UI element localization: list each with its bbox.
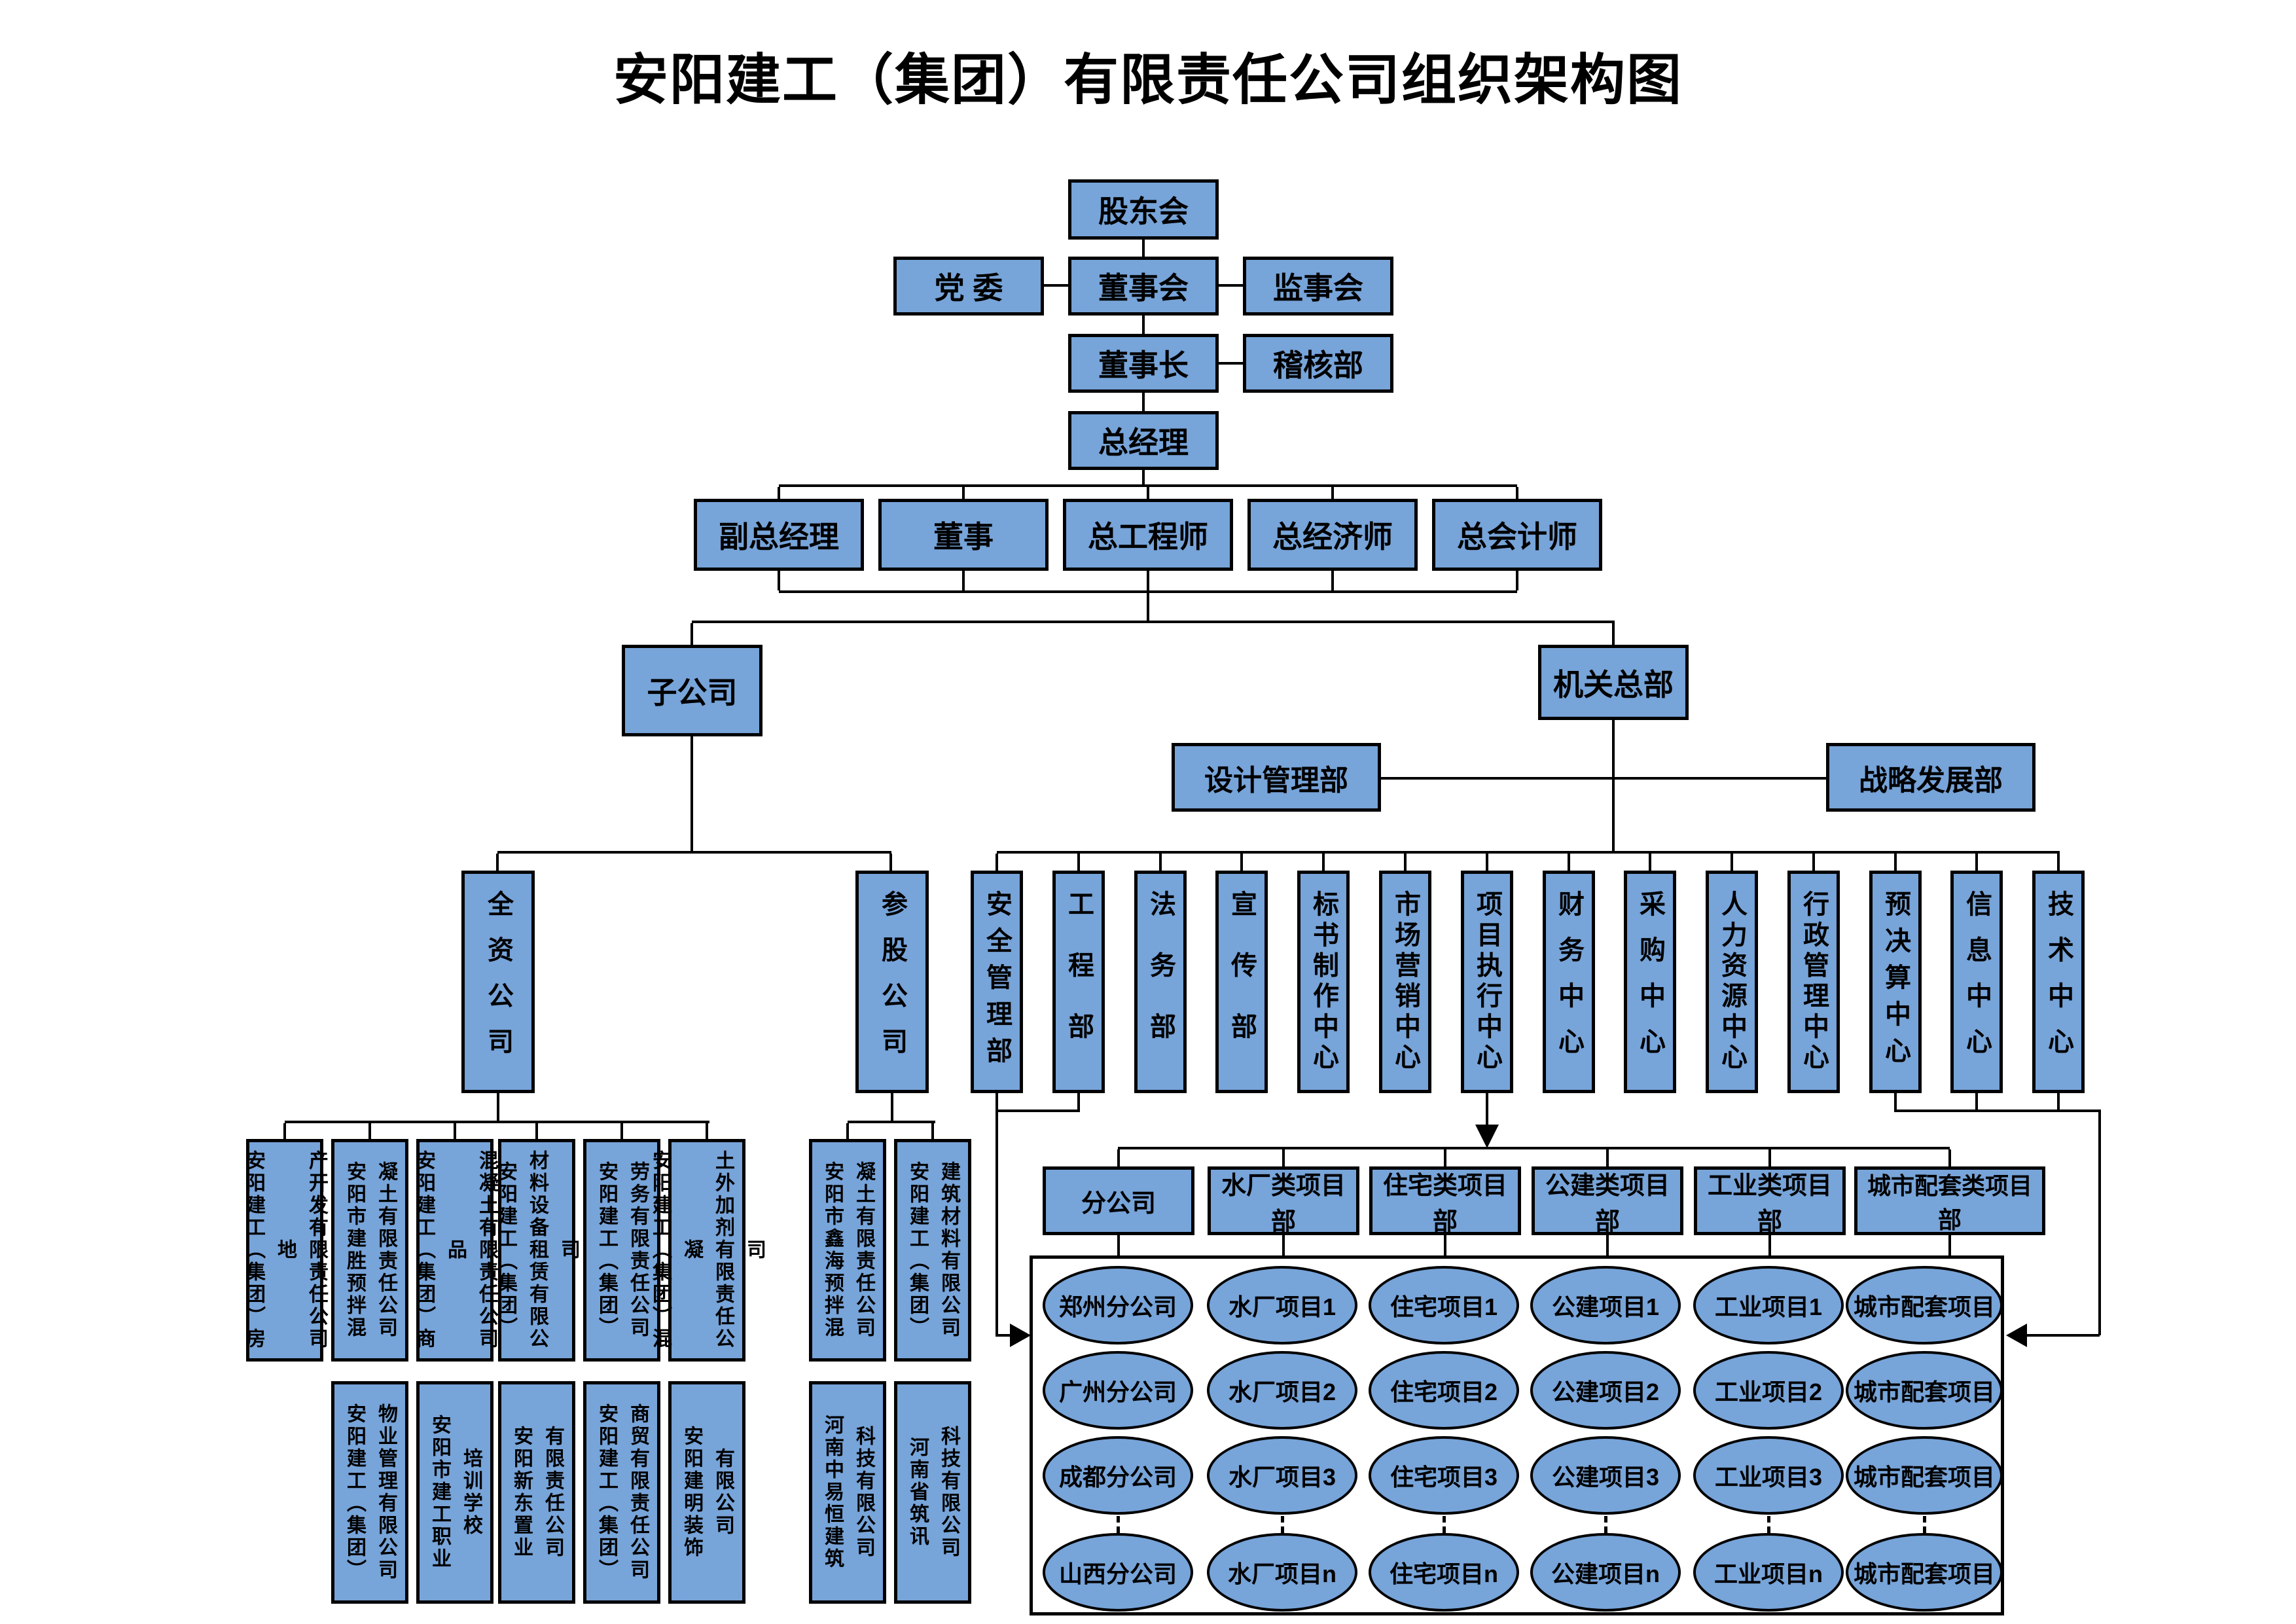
connector-line bbox=[1219, 284, 1243, 287]
dept-bid-production: 标书制作中心 bbox=[1297, 871, 1350, 1093]
ellipse-urban-3: 城市配套项目 bbox=[1846, 1436, 2003, 1515]
ellipse-urban-n: 城市配套项目 bbox=[1846, 1533, 2003, 1612]
ellipse-industrial-1: 工业项目1 bbox=[1693, 1266, 1844, 1344]
company-box: 安阳市鑫海预拌混 凝土有限责任公司 bbox=[809, 1139, 886, 1362]
dept-technology: 技术中心 bbox=[2032, 871, 2085, 1093]
connector-line bbox=[962, 571, 965, 590]
ellipse-industrial-3: 工业项目3 bbox=[1693, 1436, 1844, 1515]
ellipse-public-2: 公建项目2 bbox=[1530, 1351, 1681, 1430]
arrow-left-icon bbox=[2006, 1324, 2027, 1347]
node-supervisory: 监事会 bbox=[1243, 257, 1393, 316]
connector-line bbox=[1812, 854, 1815, 871]
connector-line bbox=[778, 571, 780, 590]
connector-line bbox=[1044, 284, 1068, 287]
ellipse-residential-1: 住宅项目1 bbox=[1369, 1266, 1519, 1344]
ellipsis-dashes bbox=[1443, 1516, 1446, 1533]
connector-line bbox=[996, 1093, 998, 1110]
header-industrial-projects: 工业类项目部 bbox=[1694, 1166, 1846, 1235]
ellipse-water-3: 水厂项目3 bbox=[1207, 1436, 1357, 1515]
connector-line bbox=[1894, 1093, 1897, 1110]
company-box: 安阳建工（集团） 物业管理有限公司 bbox=[331, 1381, 408, 1604]
connector-line bbox=[778, 487, 780, 499]
node-invested: 参股公司 bbox=[855, 871, 929, 1093]
ellipsis-dashes bbox=[1604, 1516, 1607, 1533]
node-general-manager: 总经理 bbox=[1068, 411, 1219, 470]
connector-line bbox=[1649, 854, 1651, 871]
header-public-projects: 公建类项目部 bbox=[1532, 1166, 1683, 1235]
connector-line bbox=[889, 854, 892, 871]
connector-line bbox=[1142, 316, 1145, 334]
connector-line bbox=[997, 851, 2060, 854]
connector-line bbox=[1142, 393, 1145, 411]
dept-legal: 法务部 bbox=[1134, 871, 1187, 1093]
company-box: 安阳建工（集团） 商贸有限责任公司 bbox=[583, 1381, 660, 1604]
connector-line bbox=[1331, 571, 1334, 590]
ellipse-urban-2: 城市配套项目 bbox=[1846, 1351, 2003, 1430]
company-box: 安阳市建工职业 培训学校 bbox=[416, 1381, 493, 1604]
connector-line bbox=[2098, 1112, 2101, 1335]
node-shareholders: 股东会 bbox=[1068, 179, 1219, 240]
connector-line bbox=[848, 1121, 935, 1123]
connector-line bbox=[1516, 571, 1518, 590]
ellipse-public-1: 公建项目1 bbox=[1530, 1266, 1681, 1344]
connector-line bbox=[1142, 240, 1145, 257]
connector-line bbox=[1381, 777, 1613, 780]
connector-line bbox=[846, 1123, 849, 1139]
connector-line bbox=[2027, 1334, 2100, 1337]
connector-line bbox=[368, 1123, 371, 1139]
connector-line bbox=[691, 736, 693, 851]
org-chart-canvas: 安阳建工（集团）有限责任公司组织架构图 股东会 党 委 董事会 监事会 董事长 … bbox=[0, 0, 2296, 1624]
ellipse-water-2: 水厂项目2 bbox=[1207, 1351, 1357, 1430]
connector-line bbox=[1948, 1149, 1951, 1166]
connector-line bbox=[1282, 1149, 1285, 1166]
node-director: 董事 bbox=[878, 499, 1049, 571]
connector-line bbox=[2057, 854, 2060, 871]
ellipsis-dashes bbox=[1117, 1516, 1120, 1533]
connector-line bbox=[620, 1123, 623, 1139]
connector-line bbox=[1219, 362, 1243, 365]
connector-line bbox=[1147, 571, 1149, 590]
connector-line bbox=[1516, 487, 1518, 499]
header-branch-company: 分公司 bbox=[1043, 1166, 1194, 1235]
connector-line bbox=[1486, 854, 1488, 871]
connector-line bbox=[1240, 854, 1243, 871]
connector-line bbox=[706, 1123, 708, 1139]
dept-finance: 财务中心 bbox=[1543, 871, 1595, 1093]
connector-line bbox=[1975, 854, 1978, 871]
connector-line bbox=[996, 854, 998, 871]
ellipse-industrial-n: 工业项目n bbox=[1693, 1533, 1844, 1612]
ellipse-urban-1: 城市配套项目 bbox=[1846, 1266, 2003, 1344]
node-board: 董事会 bbox=[1068, 257, 1219, 316]
connector-line bbox=[1118, 1147, 1950, 1149]
arrow-right-icon bbox=[1010, 1324, 1031, 1347]
connector-line bbox=[1142, 470, 1145, 484]
company-box: 安阳建明装饰 有限公司 bbox=[668, 1381, 745, 1604]
connector-line bbox=[283, 1123, 286, 1139]
node-chairman: 董事长 bbox=[1068, 334, 1219, 393]
connector-line bbox=[497, 1093, 499, 1121]
ellipse-water-n: 水厂项目n bbox=[1207, 1533, 1357, 1612]
ellipsis-dashes bbox=[1281, 1516, 1284, 1533]
dept-marketing: 市场营销中心 bbox=[1379, 871, 1431, 1093]
company-box: 安阳建工（集团）商品 混凝土有限责任公司 bbox=[416, 1139, 493, 1362]
ellipse-branch-n: 山西分公司 bbox=[1043, 1533, 1193, 1612]
ellipsis-dashes bbox=[1767, 1516, 1770, 1533]
connector-line bbox=[1606, 1149, 1609, 1166]
connector-line bbox=[285, 1121, 709, 1123]
ellipse-residential-3: 住宅项目3 bbox=[1369, 1436, 1519, 1515]
connector-line bbox=[1612, 623, 1615, 645]
connector-line bbox=[1159, 854, 1162, 871]
node-chief-engineer: 总工程师 bbox=[1063, 499, 1233, 571]
connector-line bbox=[1404, 854, 1407, 871]
connector-line bbox=[1731, 854, 1733, 871]
ellipse-branch-1: 郑州分公司 bbox=[1043, 1266, 1193, 1344]
header-urban-support-projects: 城市配套类项目部 bbox=[1854, 1166, 2045, 1235]
dept-admin: 行政管理中心 bbox=[1787, 871, 1840, 1093]
dept-hr: 人力资源中心 bbox=[1706, 871, 1758, 1093]
dept-procurement: 采购中心 bbox=[1624, 871, 1676, 1093]
node-wholly-owned: 全资公司 bbox=[461, 871, 535, 1093]
ellipse-branch-3: 成都分公司 bbox=[1043, 1436, 1193, 1515]
ellipse-residential-2: 住宅项目2 bbox=[1369, 1351, 1519, 1430]
connector-line bbox=[996, 1112, 998, 1335]
connector-line bbox=[1894, 1110, 2101, 1112]
connector-line bbox=[1615, 777, 1826, 780]
node-design-dept: 设计管理部 bbox=[1172, 743, 1381, 812]
node-headquarters: 机关总部 bbox=[1538, 645, 1689, 720]
dept-engineering: 工程部 bbox=[1052, 871, 1105, 1093]
node-subsidiaries: 子公司 bbox=[622, 645, 762, 736]
ellipse-public-n: 公建项目n bbox=[1530, 1533, 1681, 1612]
node-chief-economist: 总经济师 bbox=[1247, 499, 1418, 571]
header-waterplant-projects: 水厂类项目部 bbox=[1208, 1166, 1359, 1235]
connector-line bbox=[1077, 1093, 1080, 1110]
connector-line bbox=[931, 1123, 934, 1139]
header-residential-projects: 住宅类项目部 bbox=[1369, 1166, 1521, 1235]
connector-line bbox=[497, 851, 891, 854]
company-box: 河南中易恒建筑 科技有限公司 bbox=[809, 1381, 886, 1604]
connector-line bbox=[1147, 593, 1149, 621]
ellipsis-dashes bbox=[1923, 1516, 1926, 1533]
connector-line bbox=[2057, 1093, 2060, 1110]
arrow-down-icon bbox=[1475, 1125, 1499, 1148]
company-box: 安阳新东置业 有限责任公司 bbox=[498, 1381, 575, 1604]
connector-line bbox=[996, 1110, 1080, 1112]
dept-information: 信息中心 bbox=[1950, 871, 2003, 1093]
connector-line bbox=[1975, 1093, 1978, 1110]
connector-line bbox=[1117, 1149, 1120, 1166]
dept-safety-mgmt: 安全管理部 bbox=[971, 871, 1023, 1093]
connector-line bbox=[535, 1123, 538, 1139]
connector-line bbox=[454, 1123, 456, 1139]
node-deputy-gm: 副总经理 bbox=[694, 499, 864, 571]
company-box: 河南省筑讯 科技有限公司 bbox=[894, 1381, 971, 1604]
connector-line bbox=[691, 623, 693, 645]
connector-line bbox=[1444, 1149, 1446, 1166]
node-chief-accountant: 总会计师 bbox=[1432, 499, 1602, 571]
ellipse-public-3: 公建项目3 bbox=[1530, 1436, 1681, 1515]
node-strategy-dept: 战略发展部 bbox=[1826, 743, 2036, 812]
company-box: 安阳建工（集团）混凝 土外加剂有限责任公司 bbox=[668, 1139, 745, 1362]
connector-line bbox=[1894, 854, 1897, 871]
dept-publicity: 宣传部 bbox=[1215, 871, 1268, 1093]
ellipse-residential-n: 住宅项目n bbox=[1369, 1533, 1519, 1612]
company-box: 安阳建工（集团）房地 产开发有限责任公司 bbox=[246, 1139, 323, 1362]
ellipse-industrial-2: 工业项目2 bbox=[1693, 1351, 1844, 1430]
company-box: 安阳市建胜预拌混 凝土有限责任公司 bbox=[331, 1139, 408, 1362]
node-party-committee: 党 委 bbox=[893, 257, 1044, 316]
ellipse-water-1: 水厂项目1 bbox=[1207, 1266, 1357, 1344]
connector-line bbox=[1077, 854, 1080, 871]
node-audit: 稽核部 bbox=[1243, 334, 1393, 393]
page-title: 安阳建工（集团）有限责任公司组织架构图 bbox=[0, 36, 2296, 115]
connector-line bbox=[1612, 720, 1615, 854]
company-box: 安阳建工（集团） 建筑材料有限公司 bbox=[894, 1139, 971, 1362]
connector-line bbox=[1322, 854, 1325, 871]
connector-line bbox=[1147, 487, 1149, 499]
connector-line bbox=[496, 854, 499, 871]
connector-line bbox=[1568, 854, 1570, 871]
connector-line bbox=[1331, 487, 1334, 499]
connector-line bbox=[962, 487, 965, 499]
connector-line bbox=[692, 621, 1615, 623]
ellipse-branch-2: 广州分公司 bbox=[1043, 1351, 1193, 1430]
connector-line bbox=[891, 1093, 893, 1121]
dept-project-execution: 项目执行中心 bbox=[1461, 871, 1513, 1093]
connector-line bbox=[1768, 1149, 1771, 1166]
company-box: 安阳建工（集团） 材料设备租赁有限公司 bbox=[498, 1139, 575, 1362]
dept-budget: 预决算中心 bbox=[1869, 871, 1922, 1093]
connector-line bbox=[1486, 1093, 1488, 1126]
